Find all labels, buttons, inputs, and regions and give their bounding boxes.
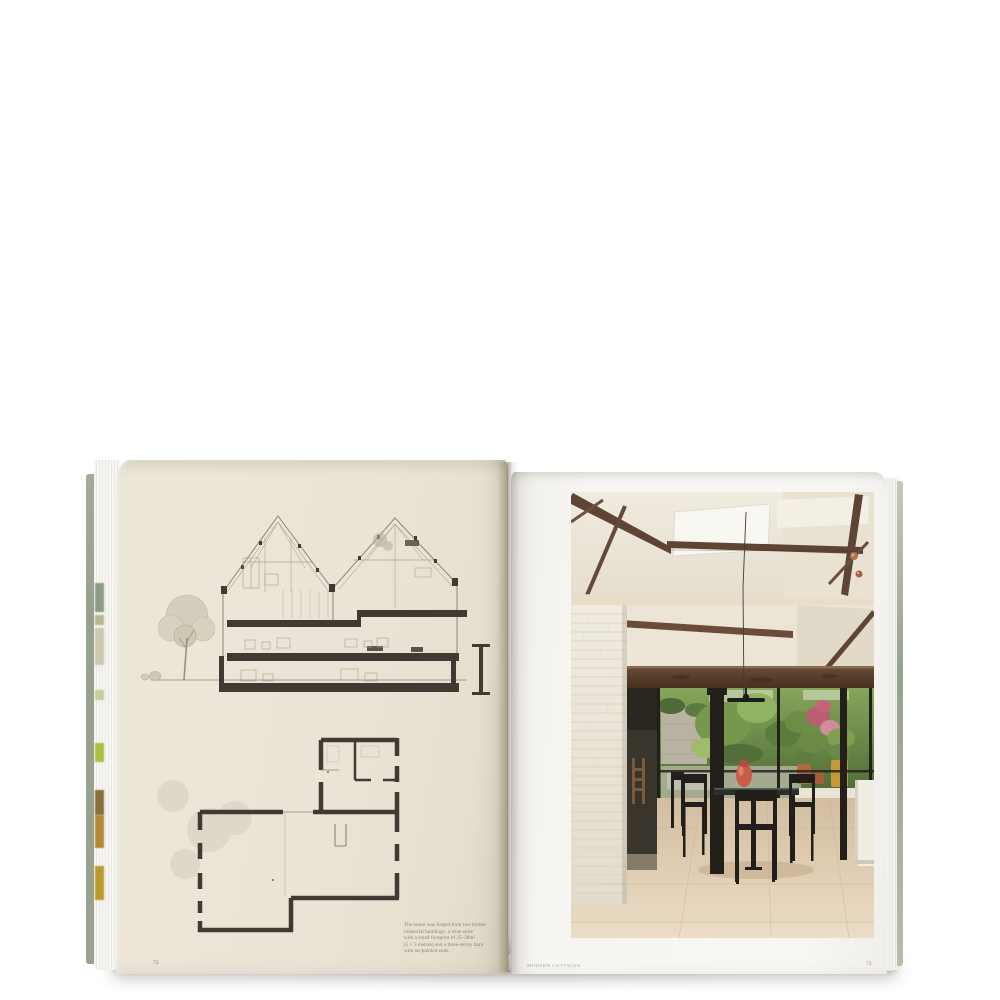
architectural-drawings	[115, 440, 505, 960]
fore-edge-print-strip	[95, 866, 104, 900]
caption-line: The house was forged from two former	[404, 923, 488, 930]
floor-plan-drawing	[157, 738, 399, 932]
mezzanine-lines	[283, 590, 328, 618]
side-counter	[855, 780, 874, 866]
caption-line: (5 × 5 metres) and a three-storey barn	[404, 943, 488, 950]
plan-tree-sketches	[157, 780, 252, 879]
fore-edge-print-strip	[95, 815, 104, 848]
white-brick-pier	[571, 605, 627, 905]
plan-partitions	[283, 746, 379, 896]
page-number-left: 72	[153, 960, 159, 966]
fore-edge-print-strip	[95, 615, 104, 625]
section-drawing	[141, 516, 490, 695]
timber-lintel	[621, 666, 874, 688]
section-poche	[219, 535, 490, 695]
fore-edge-print-strip	[95, 583, 104, 612]
fore-edge-print-strip	[95, 743, 104, 762]
caption-line: with a small footprint of 25–28m²	[404, 936, 488, 943]
page-number-right: 73	[866, 961, 872, 967]
interior-photo	[571, 492, 874, 938]
running-footer: Modern Cottages	[527, 963, 581, 968]
photo-caption: The house was forged from two former ind…	[404, 923, 488, 956]
fore-edge-print-strip	[95, 790, 104, 815]
fore-edge-print-strip	[95, 690, 104, 700]
tree-sketch	[141, 595, 215, 681]
caption-line: with tar-painted ends.	[404, 949, 488, 956]
book-cover-right-edge	[897, 481, 903, 966]
fore-edge-print-strip	[95, 628, 104, 665]
product-photo-scene: The house was forged from two former ind…	[0, 0, 1000, 1000]
doorway-recess	[627, 688, 657, 870]
